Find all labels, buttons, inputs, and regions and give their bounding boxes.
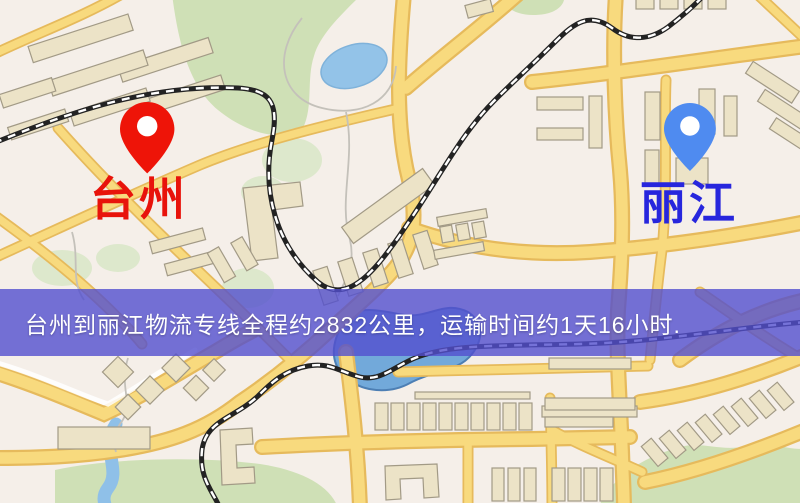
map-background <box>0 0 800 503</box>
origin-pin[interactable] <box>120 102 174 173</box>
route-info-text: 台州到丽江物流专线全程约2832公里，运输时间约1天16小时. <box>25 306 681 340</box>
origin-city-label: 台州 <box>90 177 188 223</box>
route-info-banner: 台州到丽江物流专线全程约2832公里，运输时间约1天16小时. <box>0 289 800 356</box>
location-pin-icon[interactable] <box>120 102 174 173</box>
map-canvas: 台州 丽江 台州到丽江物流专线全程约2832公里，运输时间约1天16小时. <box>0 0 800 503</box>
destination-city-label: 丽江 <box>640 181 738 227</box>
